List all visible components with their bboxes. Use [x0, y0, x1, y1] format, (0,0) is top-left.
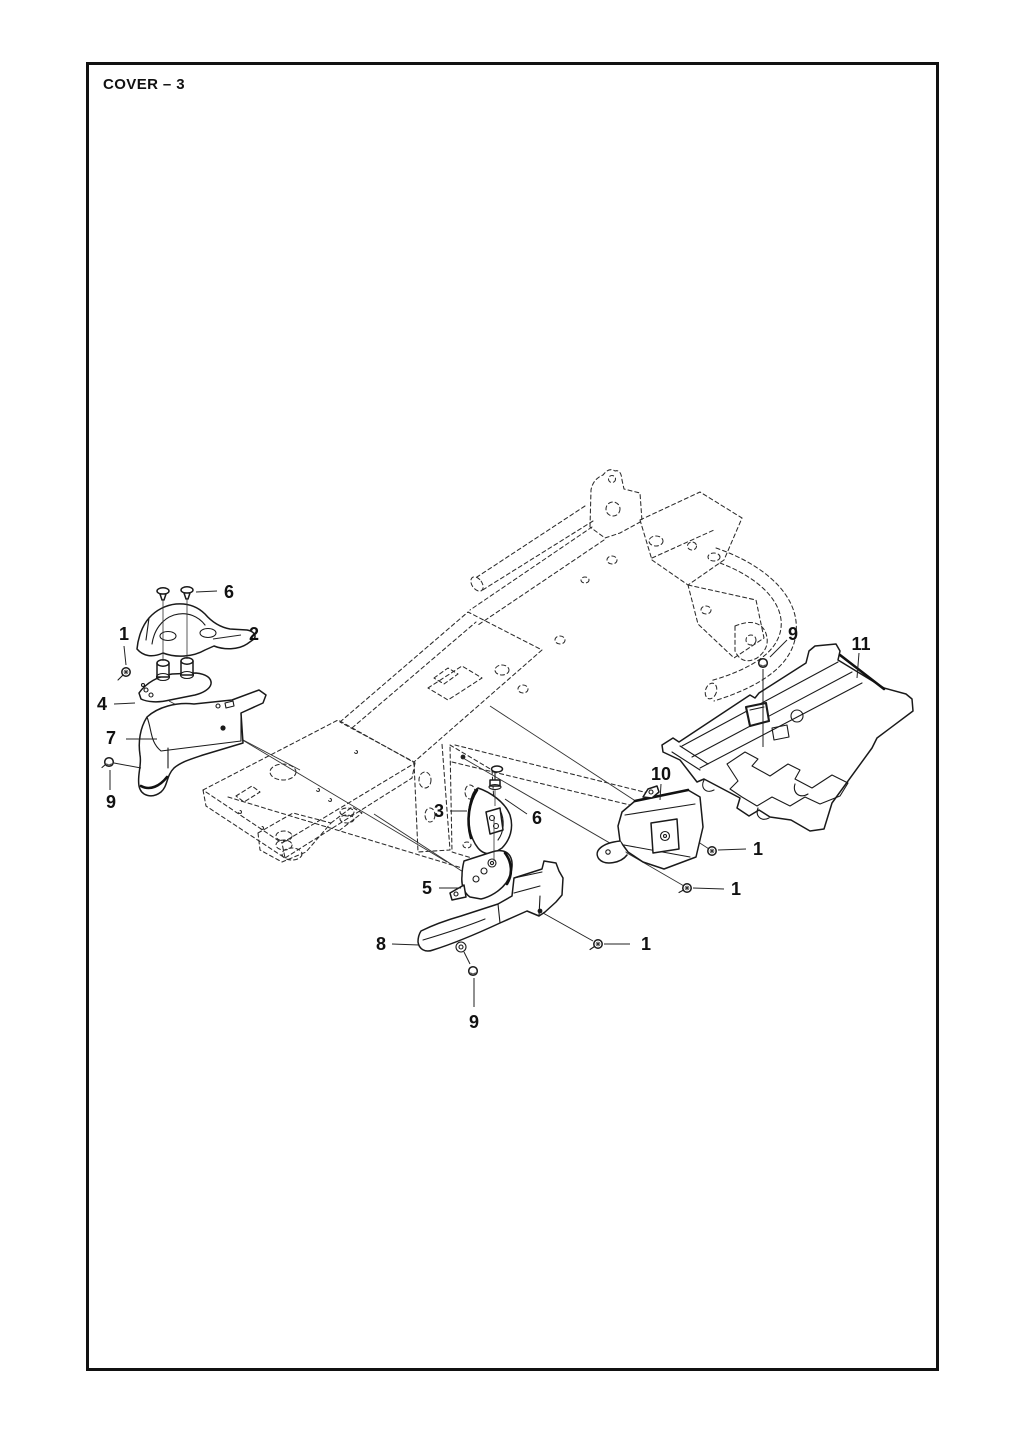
- callout-3: 3: [434, 801, 444, 821]
- screw-6-a: [157, 588, 169, 600]
- assembly-lines: [169, 701, 709, 886]
- callout-4: 4: [97, 694, 107, 714]
- part-3-bracket-cover: [468, 788, 511, 854]
- screw-6-b: [181, 587, 193, 599]
- callout-9-left: 9: [106, 792, 116, 812]
- callout-9-bottom: 9: [469, 1012, 479, 1032]
- callout-6-left: 6: [224, 582, 234, 602]
- callout-2: 2: [249, 624, 259, 644]
- screw-9-bottom: [469, 967, 478, 976]
- callout-7: 7: [106, 728, 116, 748]
- callout-1-right-upper: 1: [753, 839, 763, 859]
- screw-1-left: [118, 668, 130, 680]
- part-4-spacer-plate: [139, 658, 211, 702]
- callout-1-left: 1: [119, 624, 129, 644]
- callout-6-middle: 6: [532, 808, 542, 828]
- screw-1-right-lower: [679, 884, 691, 893]
- screw-9-left: [102, 758, 113, 768]
- callout-9-right: 9: [788, 624, 798, 644]
- callout-10: 10: [651, 764, 671, 784]
- part-10-side-panel: [597, 786, 703, 869]
- callout-1-bottom: 1: [641, 934, 651, 954]
- callout-11: 11: [851, 634, 870, 654]
- catalog-page: COVER – 3: [0, 0, 1024, 1435]
- part-5-lower-bracket: [450, 851, 512, 900]
- screw-9-right: [759, 659, 768, 668]
- screw-1-bottom: [590, 940, 602, 950]
- callout-8: 8: [376, 934, 386, 954]
- screw-1-right-upper: [708, 847, 716, 855]
- callout-1-right-lower: 1: [731, 879, 741, 899]
- diagram-svg: 6 2 1 4 7 9 3 6 5 8 1 9 10 1 1 9 11: [0, 0, 1024, 1435]
- part-2-top-cover: [137, 604, 255, 656]
- callout-5: 5: [422, 878, 432, 898]
